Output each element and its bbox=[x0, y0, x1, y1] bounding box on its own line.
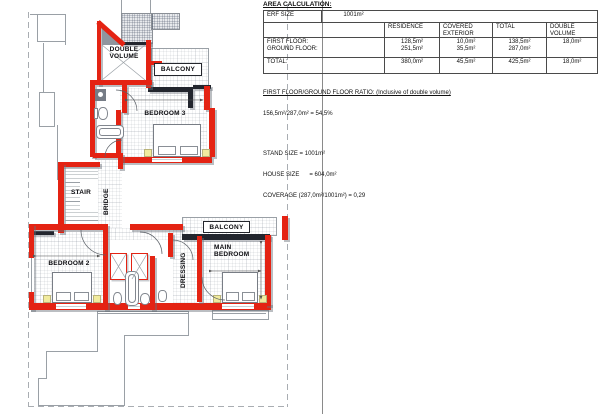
balcony-label-text: BALCONY bbox=[209, 224, 243, 231]
double-volume-bottom-wall bbox=[90, 80, 152, 85]
bedroom3-right-wall bbox=[204, 86, 210, 110]
patio-inner-line bbox=[213, 313, 266, 314]
header-covered-exterior: COVERED EXTERIOR bbox=[439, 23, 492, 37]
header-total: TOTAL bbox=[492, 23, 546, 37]
outline-segment bbox=[97, 311, 189, 312]
room-label-double-volume: DOUBLE VOLUME bbox=[99, 46, 149, 60]
pillow bbox=[242, 292, 255, 301]
room-label-bedroom2: BEDROOM 2 bbox=[35, 260, 103, 267]
outline-segment bbox=[124, 335, 189, 336]
nightstand bbox=[202, 149, 210, 157]
ground-floor-residence: 251,5m² bbox=[388, 46, 436, 53]
room-label-balcony-upper: BALCONY bbox=[154, 63, 202, 76]
room-label-stair: STAIR bbox=[63, 189, 99, 196]
bath-dressing-divider bbox=[150, 256, 155, 310]
basin bbox=[158, 290, 167, 302]
bathtub-inner bbox=[99, 128, 121, 136]
boundary-line-bottom bbox=[28, 406, 288, 407]
room-label-bridge: BRIDGE bbox=[103, 184, 116, 220]
roof-hatch-block bbox=[151, 13, 180, 30]
bed bbox=[153, 124, 201, 157]
window bbox=[29, 258, 34, 292]
outline-segment bbox=[97, 313, 189, 314]
room-label-bedroom3: BEDROOM 3 bbox=[127, 110, 203, 117]
ground-floor-label: GROUND FLOOR: bbox=[267, 46, 381, 53]
erf-size-label: ERF SIZE bbox=[264, 11, 322, 22]
total-total: 425,5m² bbox=[492, 58, 546, 73]
balcony-main-wall bbox=[182, 234, 270, 240]
total-residence: 380,0m² bbox=[384, 58, 439, 73]
outline-segment bbox=[37, 14, 38, 42]
shower bbox=[95, 89, 106, 101]
first-floor-covered: 10,0m² bbox=[443, 39, 489, 46]
outline-segment bbox=[38, 378, 47, 379]
coverage: COVERAGE (287,0m²/1001m²) = 0,29 bbox=[263, 193, 597, 200]
stair-landing bbox=[80, 182, 98, 210]
outline-segment bbox=[65, 14, 66, 45]
first-floor-total: 138,5m² bbox=[496, 39, 543, 46]
bathtub bbox=[96, 125, 124, 139]
header-double-volume: DOUBLE VOLUME bbox=[546, 23, 597, 37]
nightstand bbox=[93, 295, 101, 303]
outline-segment bbox=[30, 14, 66, 15]
total-covered: 45,5m² bbox=[439, 58, 492, 73]
balcony-label-text: BALCONY bbox=[161, 66, 195, 73]
pillow bbox=[226, 292, 239, 301]
pillow bbox=[180, 146, 198, 155]
bed bbox=[52, 272, 92, 303]
pillow bbox=[56, 292, 71, 301]
room-label-dressing: DRESSING bbox=[180, 246, 192, 294]
bathtub-inner bbox=[128, 274, 136, 303]
toilet-bowl bbox=[140, 293, 150, 305]
outline-segment bbox=[124, 335, 125, 406]
table-header-row: RESIDENCE COVERED EXTERIOR TOTAL DOUBLE … bbox=[264, 22, 597, 37]
outline-segment bbox=[37, 41, 65, 42]
nightstand bbox=[43, 295, 51, 303]
total-double-volume: 18,0m² bbox=[546, 58, 597, 73]
covered-values: 10,0m² 35,5m² bbox=[439, 38, 492, 57]
patio-outline bbox=[212, 310, 269, 320]
first-floor-residence: 128,5m² bbox=[388, 39, 436, 46]
stand-size: STAND SIZE = 1001m² bbox=[263, 151, 597, 158]
bathtub bbox=[125, 271, 139, 306]
table-row-floors: FIRST FLOOR: GROUND FLOOR: 128,5m² 251,5… bbox=[264, 37, 597, 57]
toilet-bowl bbox=[98, 107, 108, 120]
window bbox=[56, 304, 86, 309]
ratio-value: 156,5m²/287,0m² = 54,5% bbox=[263, 111, 597, 118]
window bbox=[152, 158, 182, 162]
outline-segment bbox=[121, 0, 122, 14]
outline-segment bbox=[43, 43, 44, 92]
outline-bay bbox=[39, 92, 55, 127]
floor-plan-sheet: DOUBLE VOLUME BALCONY BEDROOM 3 STAIR BR… bbox=[0, 0, 600, 414]
first-floor-label: FIRST FLOOR: bbox=[267, 39, 381, 46]
pillow bbox=[74, 292, 89, 301]
total-label: TOTAL: bbox=[264, 58, 384, 73]
house-size: HOUSE SIZE = 604,0m² bbox=[263, 172, 597, 179]
bed bbox=[222, 272, 258, 303]
first-floor-double-volume: 18,0m² bbox=[550, 39, 594, 46]
calculation-notes: FIRST FLOOR/GROUND FLOOR RATIO: (Inclusi… bbox=[263, 76, 597, 214]
outline-segment bbox=[46, 351, 47, 379]
double-volume-values: 18,0m² bbox=[546, 38, 597, 57]
outline-segment bbox=[188, 311, 189, 336]
toilet-bowl bbox=[113, 292, 122, 305]
residence-values: 128,5m² 251,5m² bbox=[384, 38, 439, 57]
boundary-line-left bbox=[28, 12, 29, 407]
double-volume-shade bbox=[102, 27, 122, 45]
pillow bbox=[158, 146, 176, 155]
window bbox=[222, 304, 254, 309]
spacer bbox=[263, 132, 597, 137]
stair-left-wall bbox=[58, 163, 64, 233]
band-top-wall bbox=[130, 224, 183, 230]
bedroom2-divider-wall bbox=[103, 224, 108, 310]
dressing-left-wall bbox=[168, 233, 173, 257]
header-blank bbox=[264, 23, 384, 37]
bridge-right-wall bbox=[118, 155, 123, 169]
erf-size-value: 1001m² bbox=[322, 11, 385, 22]
balcony-upper-wall bbox=[148, 87, 193, 92]
total-values: 138,5m² 287,0m² bbox=[492, 38, 546, 57]
outline-segment bbox=[97, 311, 98, 352]
balcony-upper-wall bbox=[188, 92, 193, 108]
table-row-erf: ERF SIZE 1001m² bbox=[264, 11, 597, 22]
main-bedroom-left-wall bbox=[197, 236, 202, 302]
shower-drain bbox=[98, 92, 103, 97]
outline-segment bbox=[46, 351, 98, 352]
band-top-wall bbox=[29, 224, 103, 230]
ratio-heading: FIRST FLOOR/GROUND FLOOR RATIO: (Inclusi… bbox=[263, 90, 597, 97]
ground-floor-covered: 35,5m² bbox=[443, 46, 489, 53]
outline-segment bbox=[150, 0, 151, 14]
room-label-balcony-main: BALCONY bbox=[203, 221, 250, 233]
right-wall-section bbox=[282, 216, 288, 240]
bathroom-divider-wall bbox=[122, 85, 127, 113]
room-label-main-bedroom: MAIN BEDROOM bbox=[208, 244, 268, 258]
nightstand bbox=[213, 295, 221, 303]
header-residence: RESIDENCE bbox=[384, 23, 439, 37]
area-calculation-title: AREA CALCULATION: bbox=[263, 1, 332, 8]
ground-floor-total: 287,0m² bbox=[496, 46, 543, 53]
area-calculation-table: ERF SIZE 1001m² RESIDENCE COVERED EXTERI… bbox=[263, 10, 598, 74]
table-row-total: TOTAL: 380,0m² 45,5m² 425,5m² 18,0m² bbox=[264, 57, 597, 73]
outline-segment bbox=[38, 378, 39, 406]
floor-labels: FIRST FLOOR: GROUND FLOOR: bbox=[264, 38, 384, 57]
erf-filler bbox=[385, 11, 597, 22]
outline-segment bbox=[38, 405, 125, 406]
nightstand bbox=[144, 149, 152, 157]
nightstand bbox=[259, 295, 267, 303]
